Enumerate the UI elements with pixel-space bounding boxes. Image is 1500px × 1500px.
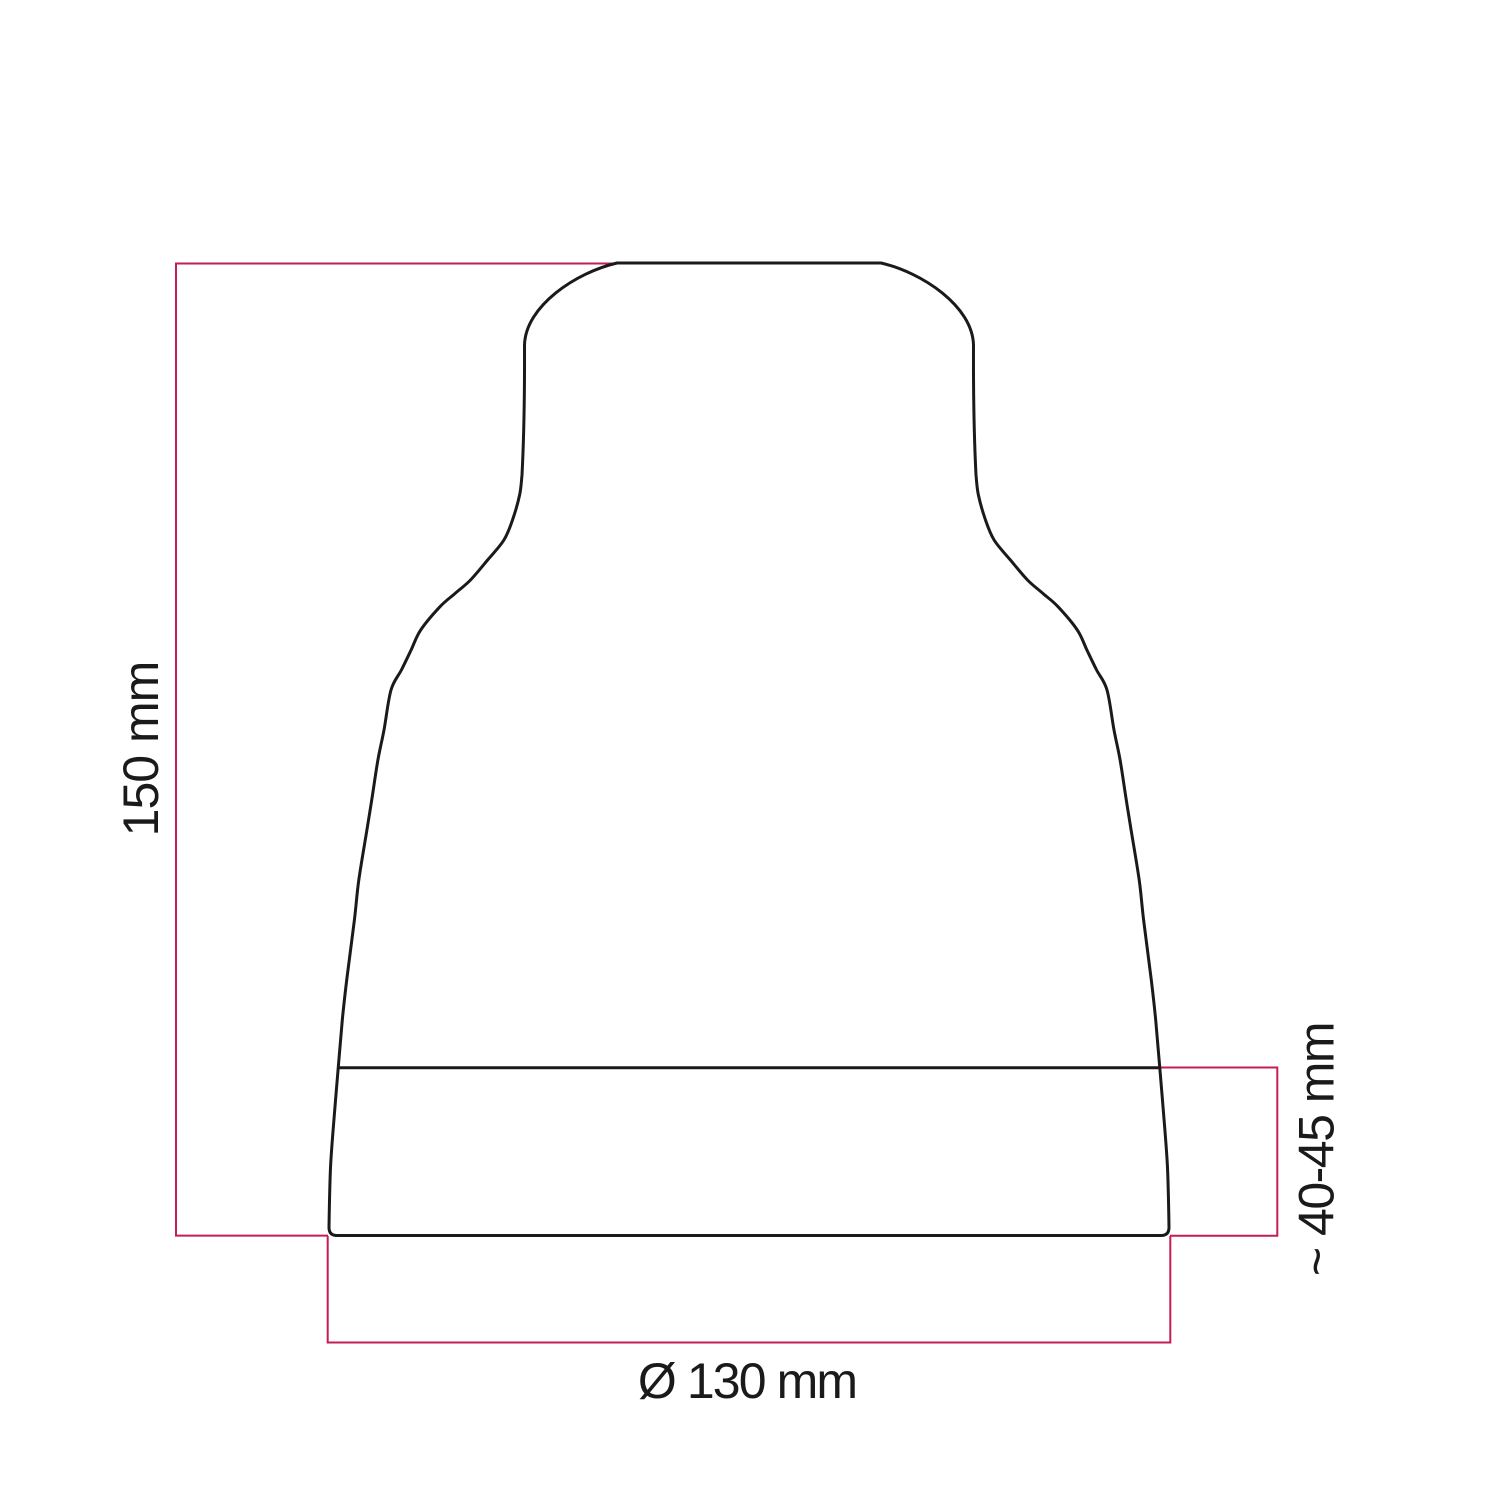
- svg-text:~ 40-45 mm: ~ 40-45 mm: [1289, 1023, 1345, 1276]
- svg-text:150 mm: 150 mm: [113, 662, 169, 837]
- svg-text:Ø 130 mm: Ø 130 mm: [638, 1353, 856, 1409]
